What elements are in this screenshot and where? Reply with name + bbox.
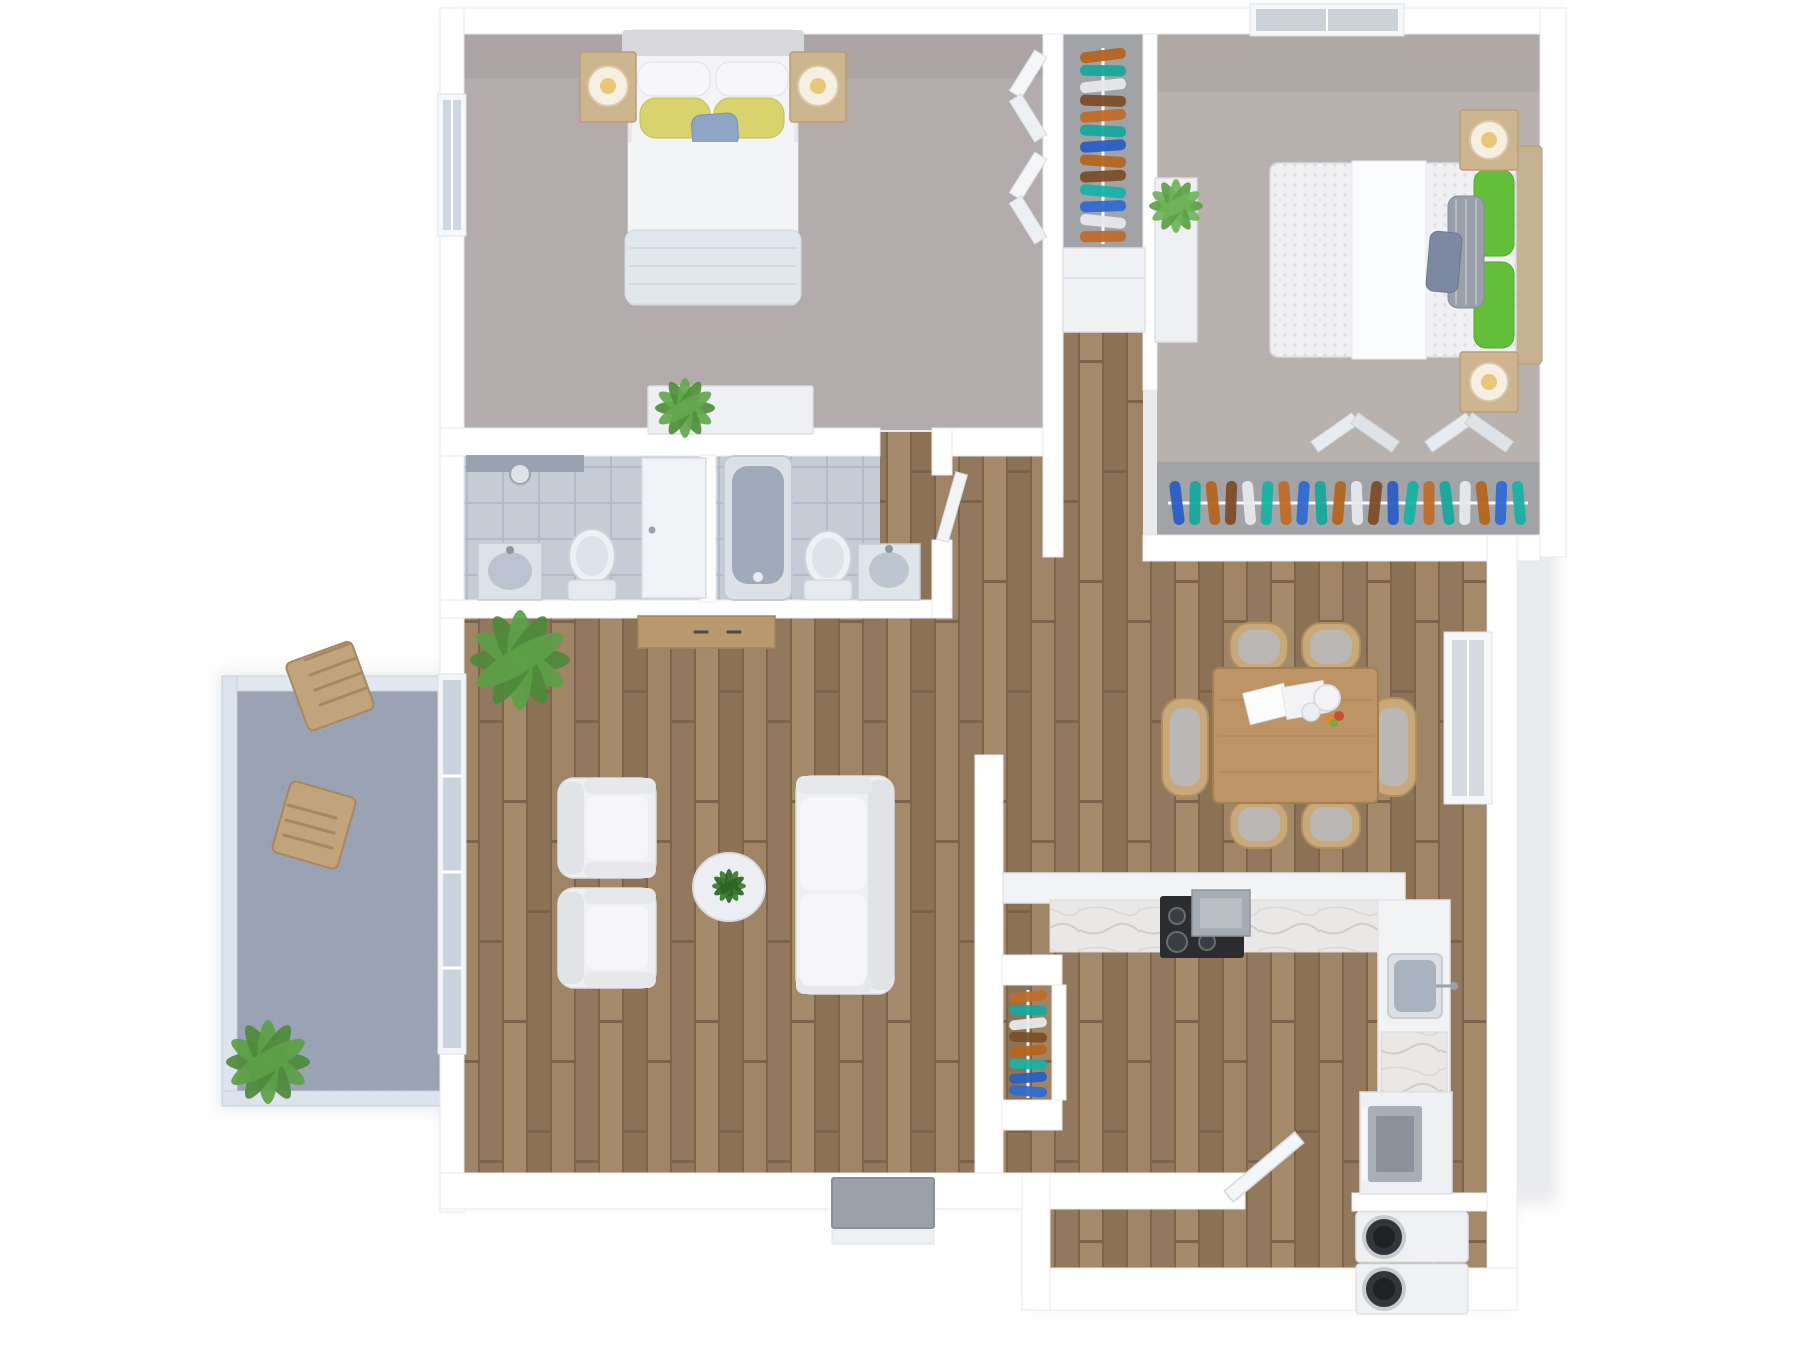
bathroom1-toilet-seat (576, 536, 608, 576)
armchair1-back (558, 782, 584, 874)
sofa-back (868, 780, 894, 990)
bathroom2-sink-faucet (885, 545, 893, 553)
kitchen-burner-2 (1167, 932, 1187, 952)
bedroom2-closet-rack-garment-12 (1387, 481, 1399, 525)
dining-chair-right-cushion (1378, 708, 1408, 786)
bathroom2-toilet-seat (812, 538, 844, 578)
kitchen-hood-vent (1200, 898, 1242, 928)
dining-chair-bottom-right-cushion (1310, 807, 1352, 841)
kitchen-burner-1 (1169, 908, 1185, 924)
armchair2-seat (586, 906, 648, 970)
master-pillow-white-right (716, 62, 788, 96)
dining-bowl (1302, 703, 1320, 721)
floor-plan-page (0, 0, 1800, 1350)
wall-kitchen-west (975, 755, 1003, 1207)
armchair2-back (558, 892, 584, 984)
bathroom2-sink-basin (869, 552, 909, 588)
kitchen-oven-window (1376, 1116, 1414, 1172)
entry-door-mat (832, 1178, 934, 1228)
wall-walkin-closet-west (1043, 34, 1063, 557)
bedroom2-closet-rack-garment-5 (1260, 481, 1273, 526)
armchair1-seat (586, 796, 648, 860)
master-pillow-white-left (638, 62, 710, 96)
entry-closet-rack-garment-5 (1009, 1058, 1047, 1070)
armchair2-arm-top (584, 888, 656, 904)
sofa-cushion-bottom (800, 894, 866, 986)
armchair1-arm-top (584, 778, 656, 794)
entry-door-sill (832, 1230, 934, 1244)
entry-closet-rack-garment-3 (1009, 1032, 1047, 1043)
bathroom1-door-handle (649, 527, 656, 534)
bathroom2-toilet-tank (804, 580, 852, 600)
bedroom2-closet-rack-garment-14 (1424, 481, 1435, 525)
bedroom2-lamp-top-bulb (1481, 132, 1497, 148)
walkin-closet-rack-garment-3 (1080, 94, 1126, 107)
bedroom2-closet-rack-garment-1 (1189, 481, 1201, 525)
wall-bathroom2-east-lower (932, 540, 952, 618)
bedroom2-pillow-accent (1425, 231, 1462, 294)
coffee-table-plant-center (726, 883, 733, 890)
master-lamp-right-bulb (810, 78, 826, 94)
master-lamp-left-bulb (600, 78, 616, 94)
bedroom2-closet-rack-garment-3 (1225, 481, 1238, 525)
master-bed-headboard (622, 30, 804, 56)
bedroom2-dresser-plant-center (1171, 201, 1182, 212)
walkin-closet-cabinet (1063, 248, 1145, 332)
kitchen-sink-basin (1394, 960, 1436, 1012)
bedroom2-closet-rack-garment-10 (1351, 481, 1364, 525)
laundry-dryer-drum (1373, 1278, 1395, 1300)
balcony-plant-center (260, 1054, 277, 1071)
entry-closet-rack-garment-1 (1009, 1005, 1047, 1016)
shower-head (510, 464, 530, 484)
bathtub-inner (732, 466, 784, 584)
kitchen-marble-lower (1381, 1032, 1447, 1092)
wall-dining-north (1143, 535, 1540, 561)
bedroom2-bed-band (1352, 161, 1426, 359)
bathroom1-toilet-tank (568, 580, 616, 600)
balcony-slider-glass (443, 680, 461, 1048)
wall-laundry-north (1352, 1193, 1487, 1211)
walkin-closet-rack-garment-12 (1080, 231, 1126, 243)
bedroom2-closet-rack-garment-16 (1459, 481, 1471, 525)
wall-bathroom2-east-upper (932, 428, 952, 475)
kitchen-faucet-base (1450, 982, 1458, 990)
sofa-arm-top (796, 776, 872, 794)
dining-chair-top-right-cushion (1310, 630, 1352, 664)
sofa-cushion-top (800, 798, 866, 890)
wall-hall-north (950, 428, 1043, 456)
wall-entry-closet-east (1052, 985, 1066, 1100)
laundry-washer-drum (1373, 1226, 1395, 1248)
dining-fruit-green (1330, 719, 1338, 727)
walkin-closet-rack-garment-1 (1080, 65, 1126, 77)
bathroom1-sink-faucet (506, 546, 514, 554)
floor-bedroom2-top-shade (1157, 34, 1540, 92)
dining-chair-top-left-cushion (1238, 630, 1280, 664)
bathroom1-sink-basin (488, 552, 532, 590)
bedroom2-closet-rack-garment-8 (1314, 481, 1327, 526)
floor-bedroom-hall (1063, 332, 1143, 558)
living-plant-tall-center (510, 650, 530, 670)
armchair1-arm-bottom (584, 862, 656, 878)
bedroom2-closet-rack-garment-18 (1495, 481, 1508, 525)
master-duvet (628, 142, 798, 234)
floor-plan-render (0, 0, 1800, 1350)
wall-entry-closet-south (1002, 1100, 1062, 1130)
wall-corridor-west (1022, 1173, 1050, 1310)
walkin-closet-rack-garment-10 (1080, 200, 1126, 213)
wall-entry-closet-north (1002, 955, 1062, 985)
floor-plan-shapes-root (218, 4, 1566, 1314)
dining-chair-bottom-left-cushion (1238, 807, 1280, 841)
dining-chair-left-cushion (1170, 708, 1200, 786)
wall-bedroom2-east-outer (1540, 8, 1566, 557)
bathtub-faucet (753, 572, 763, 582)
armchair2-arm-bottom (584, 972, 656, 988)
bedroom2-lamp-bottom-bulb (1481, 374, 1497, 390)
master-dresser-plant-center (679, 402, 691, 414)
